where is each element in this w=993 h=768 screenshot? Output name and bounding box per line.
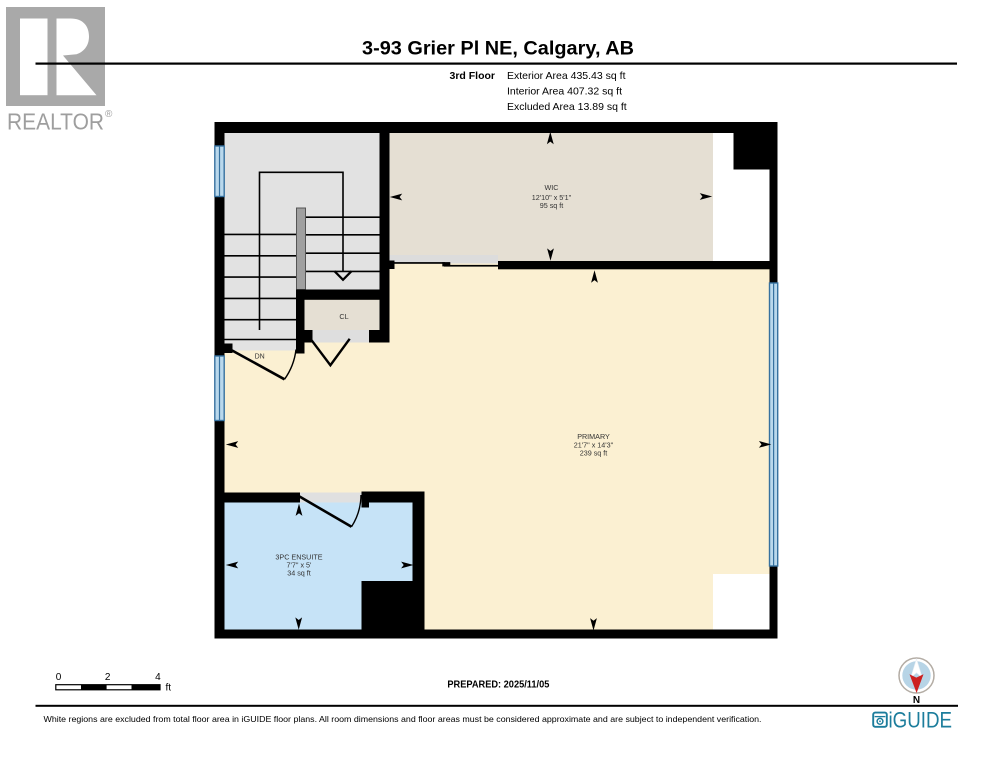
- svg-text:ft: ft: [166, 683, 172, 694]
- svg-text:3rd Floor: 3rd Floor: [449, 70, 495, 82]
- svg-text:2: 2: [105, 672, 111, 683]
- svg-text:REALTOR: REALTOR: [7, 109, 104, 135]
- svg-text:PREPARED: 2025/11/05: PREPARED: 2025/11/05: [447, 679, 549, 691]
- svg-text:34 sq ft: 34 sq ft: [287, 569, 311, 578]
- svg-text:®: ®: [105, 109, 113, 120]
- svg-text:iGUIDE: iGUIDE: [889, 708, 953, 733]
- svg-text:CL: CL: [339, 312, 348, 321]
- svg-text:Exterior Area 435.43 sq ft: Exterior Area 435.43 sq ft: [507, 70, 626, 82]
- svg-text:DN: DN: [255, 354, 265, 361]
- svg-text:White regions are excluded fro: White regions are excluded from total fl…: [44, 714, 762, 724]
- svg-text:239 sq ft: 239 sq ft: [580, 449, 608, 458]
- svg-text:95 sq ft: 95 sq ft: [540, 201, 564, 210]
- svg-text:N: N: [913, 695, 920, 706]
- svg-text:Interior Area 407.32 sq ft: Interior Area 407.32 sq ft: [507, 86, 622, 98]
- svg-text:Excluded Area 13.89 sq ft: Excluded Area 13.89 sq ft: [507, 101, 627, 113]
- svg-text:WIC: WIC: [545, 183, 559, 192]
- svg-text:0: 0: [56, 672, 62, 683]
- svg-text:4: 4: [155, 672, 161, 683]
- svg-text:3-93 Grier Pl NE, Calgary, AB: 3-93 Grier Pl NE, Calgary, AB: [362, 38, 634, 60]
